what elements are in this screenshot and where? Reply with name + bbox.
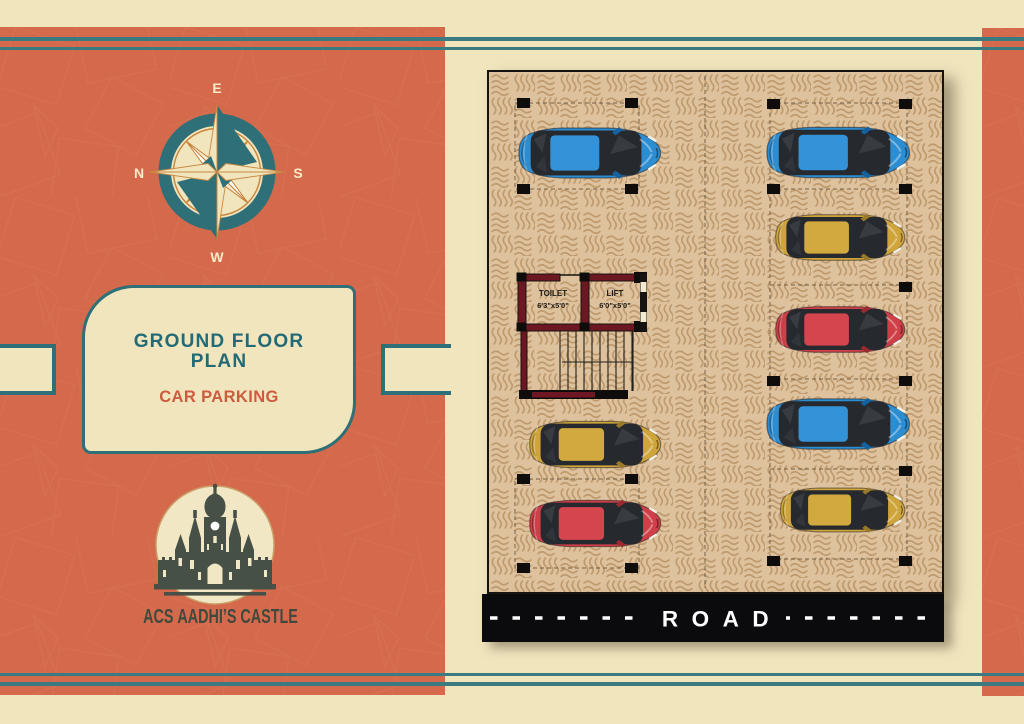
svg-text:LIFT: LIFT	[607, 289, 624, 298]
svg-text:6'0"x5'0": 6'0"x5'0"	[599, 301, 631, 310]
svg-text:6'3"x5'0": 6'3"x5'0"	[537, 301, 569, 310]
svg-text:W: W	[210, 249, 224, 265]
svg-text:E: E	[212, 80, 221, 96]
svg-text:N: N	[134, 165, 144, 181]
svg-text:S: S	[293, 165, 302, 181]
svg-text:ROAD: ROAD	[662, 607, 782, 632]
svg-text:TOILET: TOILET	[539, 289, 567, 298]
